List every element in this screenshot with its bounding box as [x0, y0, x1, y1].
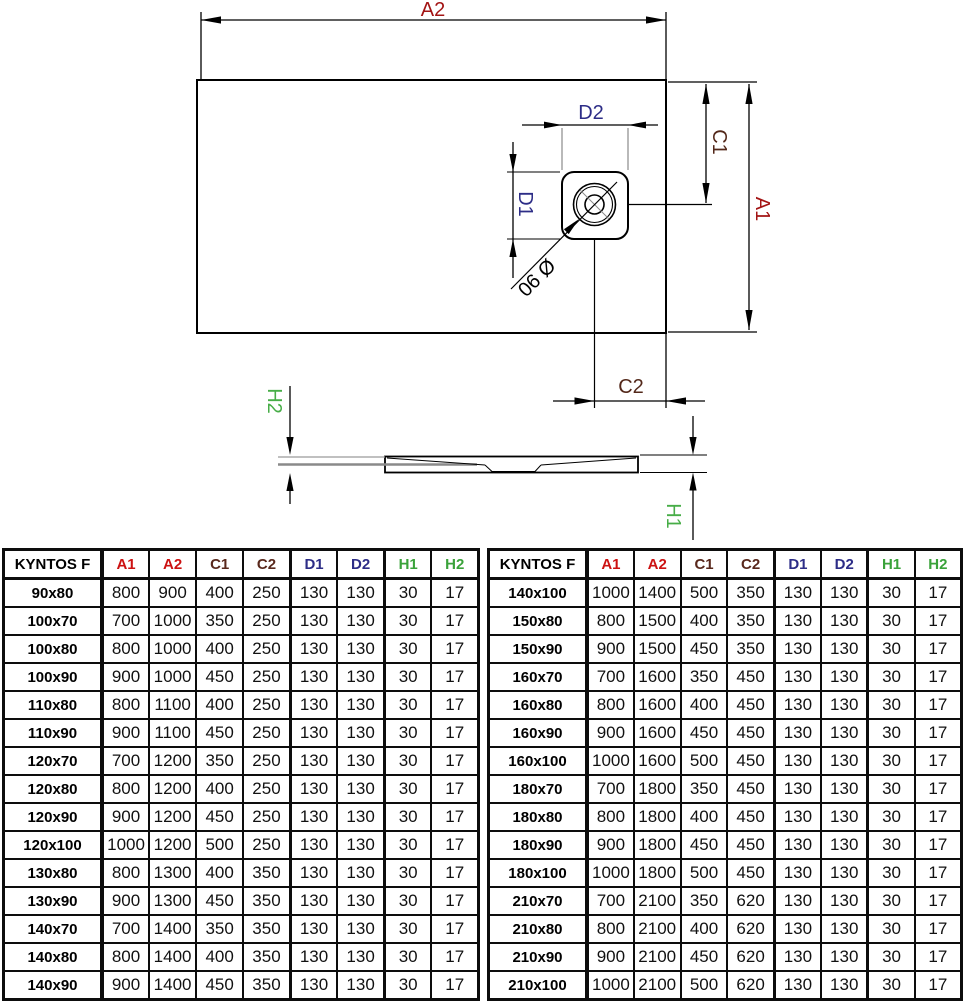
- value-cell: 30: [868, 579, 915, 608]
- value-cell: 1200: [149, 747, 196, 775]
- value-cell: 400: [681, 915, 728, 943]
- value-cell: 30: [868, 803, 915, 831]
- value-cell: 500: [681, 971, 728, 1000]
- value-cell: 17: [431, 747, 478, 775]
- size-cell: 150x90: [489, 635, 588, 663]
- value-cell: 17: [915, 691, 962, 719]
- value-cell: 130: [821, 747, 868, 775]
- value-cell: 620: [727, 971, 774, 1000]
- size-cell: 120x90: [4, 803, 103, 831]
- value-cell: 250: [243, 607, 290, 635]
- value-cell: 130: [821, 915, 868, 943]
- size-cell: 120x80: [4, 775, 103, 803]
- value-cell: 130: [774, 859, 821, 887]
- value-cell: 17: [915, 831, 962, 859]
- table-row: 120x8080012004002501301303017: [4, 775, 479, 803]
- value-cell: 1000: [587, 579, 634, 608]
- value-cell: 400: [196, 943, 243, 971]
- value-cell: 800: [587, 691, 634, 719]
- value-cell: 17: [431, 691, 478, 719]
- value-cell: 30: [868, 663, 915, 691]
- value-cell: 400: [681, 803, 728, 831]
- value-cell: 1100: [149, 719, 196, 747]
- size-cell: 210x90: [489, 943, 588, 971]
- table-row: 120x7070012003502501301303017: [4, 747, 479, 775]
- spec-table-right: KYNTOS FA1A2C1C2D1D2H1H2140x100100014005…: [487, 548, 963, 1001]
- value-cell: 130: [774, 971, 821, 1000]
- value-cell: 130: [821, 887, 868, 915]
- value-cell: 130: [337, 775, 384, 803]
- size-cell: 180x90: [489, 831, 588, 859]
- value-cell: 130: [821, 663, 868, 691]
- table-row: 210x9090021004506201301303017: [489, 943, 962, 971]
- value-cell: 130: [821, 635, 868, 663]
- value-cell: 130: [337, 747, 384, 775]
- value-cell: 350: [681, 663, 728, 691]
- size-cell: 180x70: [489, 775, 588, 803]
- value-cell: 350: [727, 607, 774, 635]
- value-cell: 1500: [634, 607, 681, 635]
- col-header-d1: D1: [290, 550, 337, 579]
- dimension-c2: [553, 397, 705, 404]
- value-cell: 1400: [149, 943, 196, 971]
- value-cell: 17: [915, 579, 962, 608]
- value-cell: 350: [681, 887, 728, 915]
- value-cell: 1600: [634, 719, 681, 747]
- value-cell: 17: [431, 607, 478, 635]
- size-cell: 160x100: [489, 747, 588, 775]
- size-cell: 140x90: [4, 971, 103, 1000]
- value-cell: 500: [681, 579, 728, 608]
- value-cell: 130: [290, 691, 337, 719]
- value-cell: 130: [821, 859, 868, 887]
- value-cell: 30: [384, 803, 431, 831]
- value-cell: 450: [196, 803, 243, 831]
- value-cell: 450: [727, 747, 774, 775]
- size-cell: 210x70: [489, 887, 588, 915]
- size-cell: 90x80: [4, 579, 103, 608]
- value-cell: 17: [915, 775, 962, 803]
- size-cell: 180x80: [489, 803, 588, 831]
- value-cell: 250: [243, 663, 290, 691]
- value-cell: 130: [290, 775, 337, 803]
- value-cell: 350: [196, 607, 243, 635]
- value-cell: 17: [915, 607, 962, 635]
- value-cell: 1800: [634, 803, 681, 831]
- value-cell: 130: [821, 971, 868, 1000]
- table-row: 140x8080014004003501301303017: [4, 943, 479, 971]
- value-cell: 400: [681, 607, 728, 635]
- value-cell: 350: [196, 915, 243, 943]
- col-header-kyntos-f: KYNTOS F: [4, 550, 103, 579]
- table-row: 210x100100021005006201301303017: [489, 971, 962, 1000]
- value-cell: 130: [774, 691, 821, 719]
- value-cell: 130: [774, 803, 821, 831]
- value-cell: 17: [915, 971, 962, 1000]
- table-row: 150x9090015004503501301303017: [489, 635, 962, 663]
- value-cell: 130: [821, 943, 868, 971]
- value-cell: 17: [431, 887, 478, 915]
- table-row: 120x100100012005002501301303017: [4, 831, 479, 859]
- value-cell: 350: [243, 859, 290, 887]
- value-cell: 350: [727, 579, 774, 608]
- table-row: 160x8080016004004501301303017: [489, 691, 962, 719]
- value-cell: 900: [587, 719, 634, 747]
- size-cell: 160x70: [489, 663, 588, 691]
- table-row: 100x8080010004002501301303017: [4, 635, 479, 663]
- value-cell: 1800: [634, 775, 681, 803]
- value-cell: 500: [196, 831, 243, 859]
- col-header-h1: H1: [868, 550, 915, 579]
- value-cell: 130: [821, 579, 868, 608]
- value-cell: 800: [587, 915, 634, 943]
- value-cell: 130: [821, 831, 868, 859]
- value-cell: 450: [727, 859, 774, 887]
- value-cell: 30: [868, 747, 915, 775]
- value-cell: 800: [102, 859, 149, 887]
- spec-sheet-page: { "drawing": { "labels": { "a2": "A2", "…: [0, 0, 965, 1000]
- col-header-a2: A2: [149, 550, 196, 579]
- value-cell: 130: [290, 859, 337, 887]
- value-cell: 30: [384, 971, 431, 1000]
- dimension-a1: [668, 82, 757, 332]
- value-cell: 1800: [634, 831, 681, 859]
- value-cell: 130: [290, 579, 337, 608]
- table-row: 150x8080015004003501301303017: [489, 607, 962, 635]
- value-cell: 800: [102, 943, 149, 971]
- value-cell: 17: [915, 943, 962, 971]
- value-cell: 130: [774, 719, 821, 747]
- value-cell: 800: [587, 803, 634, 831]
- value-cell: 800: [102, 775, 149, 803]
- value-cell: 130: [290, 607, 337, 635]
- value-cell: 30: [868, 971, 915, 1000]
- value-cell: 130: [774, 915, 821, 943]
- col-header-c2: C2: [727, 550, 774, 579]
- value-cell: 17: [915, 635, 962, 663]
- value-cell: 30: [384, 607, 431, 635]
- value-cell: 130: [337, 971, 384, 1000]
- table-row: 110x9090011004502501301303017: [4, 719, 479, 747]
- value-cell: 1200: [149, 803, 196, 831]
- table-row: 120x9090012004502501301303017: [4, 803, 479, 831]
- value-cell: 1000: [102, 831, 149, 859]
- value-cell: 130: [774, 775, 821, 803]
- value-cell: 30: [868, 607, 915, 635]
- value-cell: 250: [243, 831, 290, 859]
- value-cell: 250: [243, 579, 290, 608]
- value-cell: 130: [821, 719, 868, 747]
- value-cell: 30: [868, 915, 915, 943]
- value-cell: 900: [102, 887, 149, 915]
- value-cell: 2100: [634, 915, 681, 943]
- value-cell: 130: [337, 635, 384, 663]
- value-cell: 500: [681, 859, 728, 887]
- value-cell: 350: [727, 635, 774, 663]
- value-cell: 450: [727, 831, 774, 859]
- value-cell: 1400: [149, 915, 196, 943]
- value-cell: 1800: [634, 859, 681, 887]
- label-h2: H2: [263, 388, 285, 414]
- label-a1: A1: [751, 197, 773, 221]
- value-cell: 2100: [634, 971, 681, 1000]
- value-cell: 130: [337, 607, 384, 635]
- value-cell: 800: [102, 691, 149, 719]
- value-cell: 130: [290, 803, 337, 831]
- value-cell: 1400: [634, 579, 681, 608]
- value-cell: 1600: [634, 691, 681, 719]
- table-row: 160x9090016004504501301303017: [489, 719, 962, 747]
- value-cell: 450: [727, 663, 774, 691]
- table-row: 100x7070010003502501301303017: [4, 607, 479, 635]
- value-cell: 450: [727, 775, 774, 803]
- col-header-h1: H1: [384, 550, 431, 579]
- value-cell: 400: [196, 635, 243, 663]
- value-cell: 250: [243, 775, 290, 803]
- value-cell: 30: [384, 579, 431, 608]
- table-row: 160x100100016005004501301303017: [489, 747, 962, 775]
- side-view: [278, 457, 638, 473]
- value-cell: 400: [196, 859, 243, 887]
- value-cell: 30: [868, 775, 915, 803]
- value-cell: 130: [290, 719, 337, 747]
- value-cell: 130: [821, 803, 868, 831]
- value-cell: 450: [727, 719, 774, 747]
- value-cell: 700: [587, 887, 634, 915]
- value-cell: 450: [681, 635, 728, 663]
- label-d1: D1: [514, 191, 536, 217]
- label-c1: C1: [708, 129, 730, 155]
- value-cell: 30: [868, 635, 915, 663]
- value-cell: 17: [431, 775, 478, 803]
- col-header-kyntos-f: KYNTOS F: [489, 550, 588, 579]
- value-cell: 1000: [587, 747, 634, 775]
- value-cell: 17: [915, 887, 962, 915]
- value-cell: 350: [243, 915, 290, 943]
- size-cell: 100x90: [4, 663, 103, 691]
- value-cell: 1000: [587, 859, 634, 887]
- value-cell: 130: [290, 887, 337, 915]
- table-row: 140x9090014004503501301303017: [4, 971, 479, 1000]
- value-cell: 620: [727, 915, 774, 943]
- value-cell: 250: [243, 803, 290, 831]
- value-cell: 350: [243, 971, 290, 1000]
- value-cell: 130: [821, 607, 868, 635]
- size-cell: 210x80: [489, 915, 588, 943]
- value-cell: 30: [384, 859, 431, 887]
- value-cell: 17: [431, 579, 478, 608]
- table-row: 90x808009004002501301303017: [4, 579, 479, 608]
- value-cell: 130: [337, 691, 384, 719]
- value-cell: 1000: [149, 663, 196, 691]
- value-cell: 250: [243, 635, 290, 663]
- value-cell: 30: [384, 831, 431, 859]
- table-row: 180x8080018004004501301303017: [489, 803, 962, 831]
- value-cell: 30: [868, 859, 915, 887]
- size-cell: 140x70: [4, 915, 103, 943]
- value-cell: 450: [196, 887, 243, 915]
- size-cell: 140x100: [489, 579, 588, 608]
- value-cell: 900: [102, 663, 149, 691]
- value-cell: 130: [774, 887, 821, 915]
- value-cell: 130: [821, 691, 868, 719]
- table-row: 140x100100014005003501301303017: [489, 579, 962, 608]
- table-row: 100x9090010004502501301303017: [4, 663, 479, 691]
- value-cell: 130: [821, 775, 868, 803]
- size-cell: 160x90: [489, 719, 588, 747]
- size-cell: 110x80: [4, 691, 103, 719]
- value-cell: 17: [431, 831, 478, 859]
- col-header-c1: C1: [196, 550, 243, 579]
- value-cell: 1600: [634, 663, 681, 691]
- value-cell: 17: [915, 663, 962, 691]
- value-cell: 30: [868, 943, 915, 971]
- col-header-a2: A2: [634, 550, 681, 579]
- value-cell: 2100: [634, 887, 681, 915]
- table-row: 210x8080021004006201301303017: [489, 915, 962, 943]
- value-cell: 700: [102, 915, 149, 943]
- dimension-h1-arrows: [689, 437, 696, 491]
- value-cell: 800: [102, 579, 149, 608]
- value-cell: 30: [868, 831, 915, 859]
- value-cell: 800: [102, 635, 149, 663]
- value-cell: 900: [587, 831, 634, 859]
- value-cell: 17: [431, 803, 478, 831]
- value-cell: 30: [384, 635, 431, 663]
- value-cell: 700: [102, 607, 149, 635]
- value-cell: 450: [727, 691, 774, 719]
- value-cell: 130: [290, 943, 337, 971]
- header-row: KYNTOS FA1A2C1C2D1D2H1H2: [489, 550, 962, 579]
- value-cell: 700: [587, 775, 634, 803]
- value-cell: 130: [337, 579, 384, 608]
- label-d2: D2: [578, 102, 604, 124]
- value-cell: 130: [337, 663, 384, 691]
- value-cell: 130: [774, 607, 821, 635]
- value-cell: 30: [384, 915, 431, 943]
- table-row: 210x7070021003506201301303017: [489, 887, 962, 915]
- value-cell: 400: [681, 691, 728, 719]
- value-cell: 400: [196, 691, 243, 719]
- value-cell: 500: [681, 747, 728, 775]
- value-cell: 17: [915, 915, 962, 943]
- value-cell: 130: [337, 719, 384, 747]
- size-cell: 210x100: [489, 971, 588, 1000]
- value-cell: 350: [681, 775, 728, 803]
- size-cell: 150x80: [489, 607, 588, 635]
- value-cell: 450: [727, 803, 774, 831]
- col-header-d2: D2: [821, 550, 868, 579]
- value-cell: 1000: [149, 635, 196, 663]
- value-cell: 130: [774, 663, 821, 691]
- table-row: 160x7070016003504501301303017: [489, 663, 962, 691]
- value-cell: 450: [681, 943, 728, 971]
- col-header-d2: D2: [337, 550, 384, 579]
- value-cell: 250: [243, 747, 290, 775]
- value-cell: 130: [337, 915, 384, 943]
- value-cell: 1300: [149, 859, 196, 887]
- value-cell: 1000: [587, 971, 634, 1000]
- value-cell: 130: [337, 831, 384, 859]
- value-cell: 250: [243, 719, 290, 747]
- col-header-c1: C1: [681, 550, 728, 579]
- shower-tray-technical-drawing: A2 A1 C1 D2: [0, 0, 965, 546]
- size-cell: 130x90: [4, 887, 103, 915]
- header-row: KYNTOS FA1A2C1C2D1D2H1H2: [4, 550, 479, 579]
- dimension-h2: [286, 386, 293, 504]
- value-cell: 130: [774, 943, 821, 971]
- value-cell: 900: [102, 719, 149, 747]
- value-cell: 30: [384, 663, 431, 691]
- value-cell: 800: [587, 607, 634, 635]
- size-cell: 130x80: [4, 859, 103, 887]
- col-header-a1: A1: [587, 550, 634, 579]
- col-header-h2: H2: [915, 550, 962, 579]
- label-a2: A2: [421, 0, 445, 21]
- value-cell: 17: [431, 915, 478, 943]
- value-cell: 130: [290, 915, 337, 943]
- value-cell: 130: [337, 943, 384, 971]
- label-h1: H1: [662, 503, 684, 529]
- value-cell: 130: [774, 747, 821, 775]
- value-cell: 450: [196, 971, 243, 1000]
- value-cell: 130: [774, 831, 821, 859]
- value-cell: 17: [431, 943, 478, 971]
- value-cell: 130: [290, 663, 337, 691]
- value-cell: 450: [196, 719, 243, 747]
- value-cell: 30: [384, 747, 431, 775]
- value-cell: 17: [915, 747, 962, 775]
- value-cell: 130: [337, 803, 384, 831]
- value-cell: 17: [915, 859, 962, 887]
- value-cell: 250: [243, 691, 290, 719]
- table-row: 110x8080011004002501301303017: [4, 691, 479, 719]
- value-cell: 400: [196, 775, 243, 803]
- value-cell: 17: [915, 719, 962, 747]
- size-cell: 110x90: [4, 719, 103, 747]
- value-cell: 30: [384, 943, 431, 971]
- value-cell: 620: [727, 887, 774, 915]
- size-cell: 120x100: [4, 831, 103, 859]
- value-cell: 1500: [634, 635, 681, 663]
- col-header-h2: H2: [431, 550, 478, 579]
- spec-table-left: KYNTOS FA1A2C1C2D1D2H1H290x8080090040025…: [2, 548, 480, 1001]
- value-cell: 30: [868, 691, 915, 719]
- value-cell: 900: [102, 971, 149, 1000]
- value-cell: 130: [774, 579, 821, 608]
- value-cell: 450: [196, 663, 243, 691]
- value-cell: 700: [587, 663, 634, 691]
- col-header-d1: D1: [774, 550, 821, 579]
- value-cell: 30: [868, 719, 915, 747]
- label-c2: C2: [618, 376, 644, 398]
- value-cell: 620: [727, 943, 774, 971]
- value-cell: 130: [337, 859, 384, 887]
- value-cell: 900: [587, 635, 634, 663]
- value-cell: 450: [681, 831, 728, 859]
- size-cell: 100x80: [4, 635, 103, 663]
- value-cell: 1100: [149, 691, 196, 719]
- value-cell: 17: [431, 663, 478, 691]
- table-row: 130x8080013004003501301303017: [4, 859, 479, 887]
- table-row: 130x9090013004503501301303017: [4, 887, 479, 915]
- value-cell: 17: [431, 635, 478, 663]
- value-cell: 1300: [149, 887, 196, 915]
- table-row: 180x9090018004504501301303017: [489, 831, 962, 859]
- value-cell: 350: [243, 943, 290, 971]
- value-cell: 30: [384, 691, 431, 719]
- value-cell: 350: [243, 887, 290, 915]
